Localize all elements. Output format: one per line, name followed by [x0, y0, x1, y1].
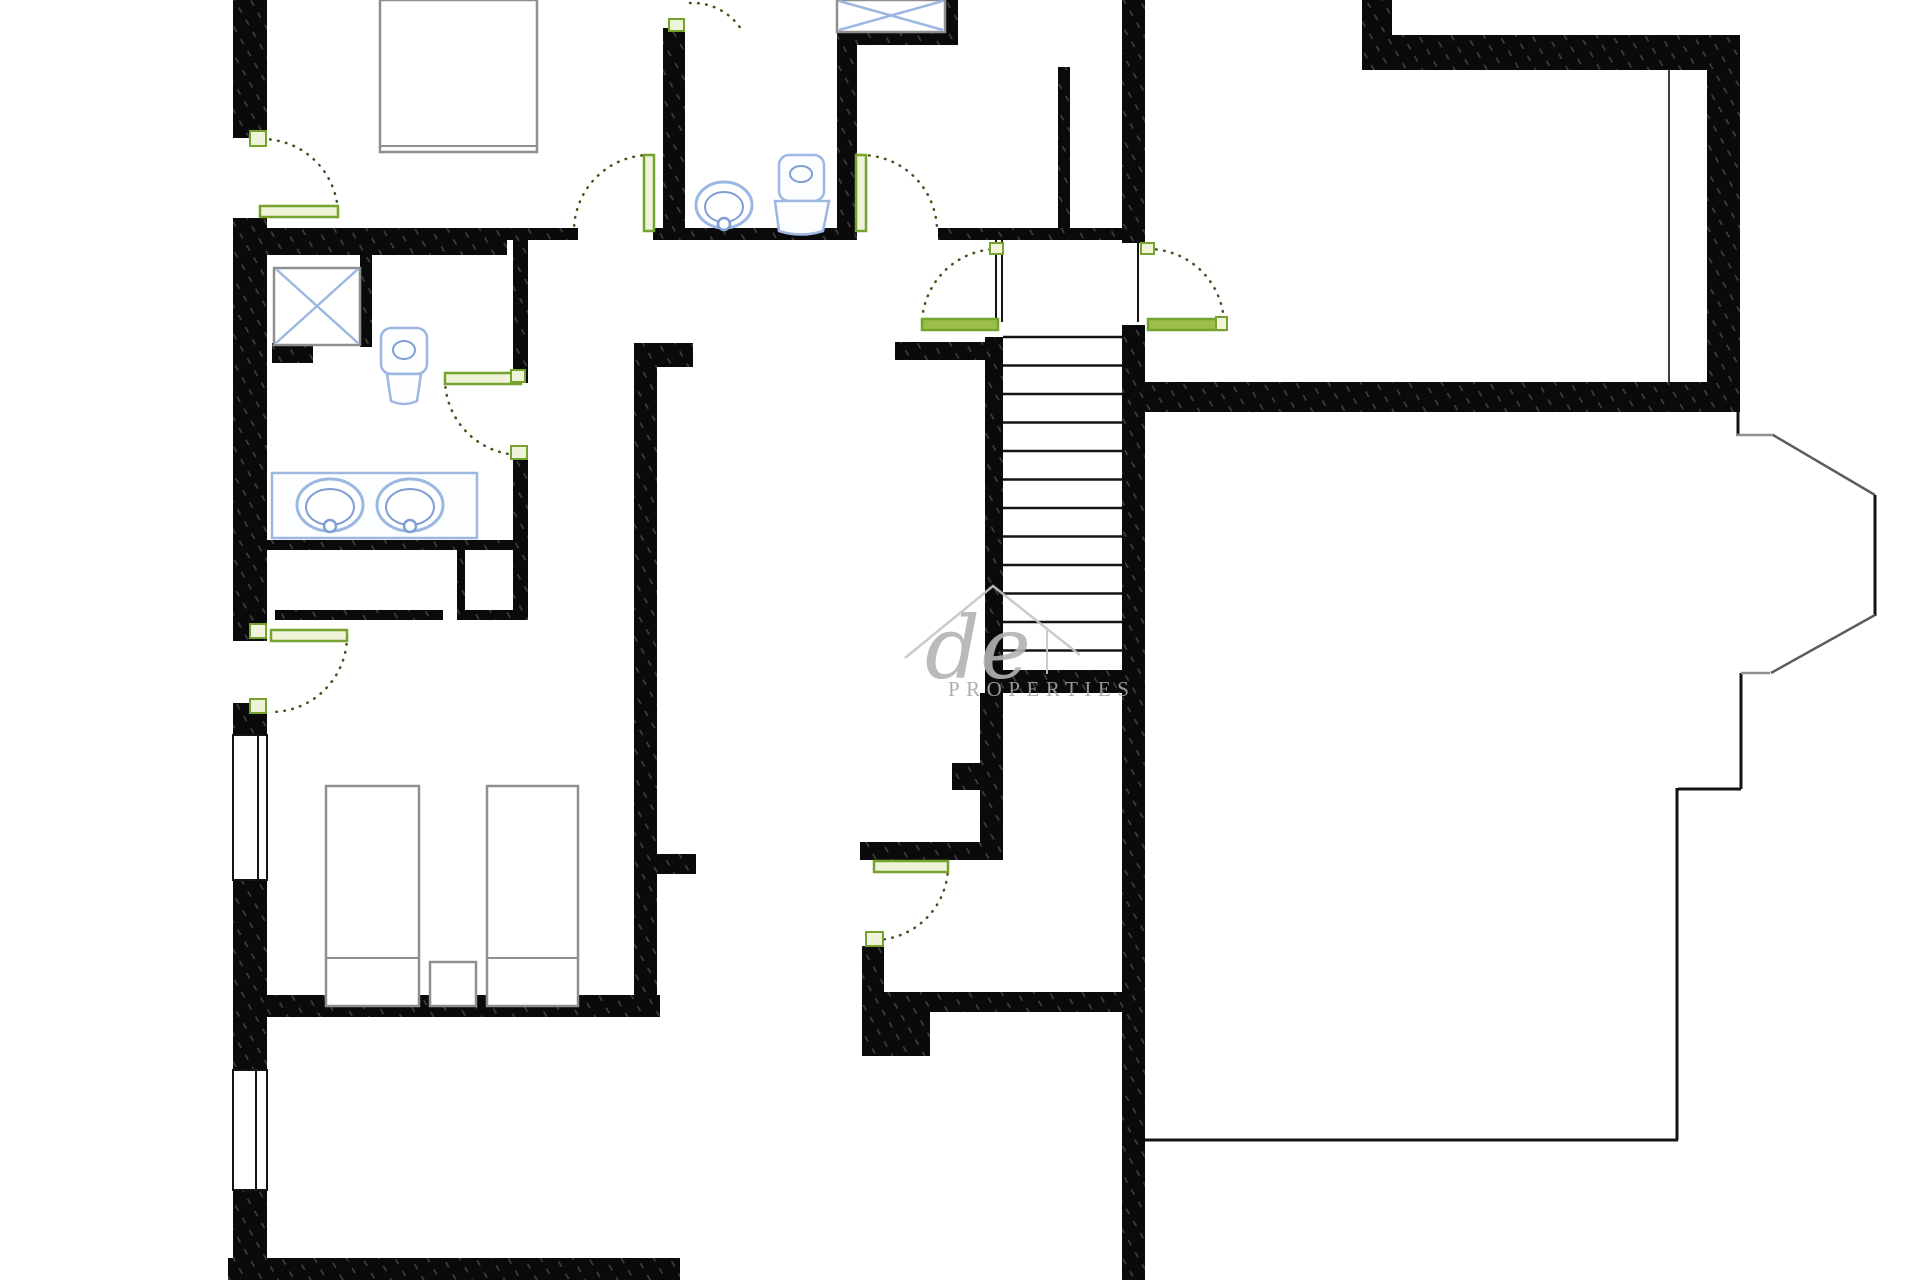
wall-understair-west: [980, 693, 1003, 843]
door-landing-right-leaf: [1148, 319, 1224, 330]
wall-bedroom2-east-stub: [657, 854, 696, 874]
wall-corridor-west-upper: [513, 230, 528, 383]
watermark-layer: dePROPERTIES: [905, 586, 1135, 701]
window-left-1-frame: [233, 735, 267, 880]
window-left-2: [233, 1070, 267, 1190]
door-bathroom: [445, 370, 527, 459]
line-bay-diag-top: [1773, 435, 1875, 495]
door-wc-leaf: [856, 155, 866, 231]
wall-wc-east: [837, 32, 857, 231]
bed-top: [380, 0, 537, 152]
wall-topright-south: [1145, 382, 1740, 412]
nightstand-outline: [430, 962, 476, 1006]
door-bedroom2-hinge-marker: [250, 624, 266, 638]
line-bay-diag-bottom: [1771, 615, 1875, 673]
wall-wc-west: [663, 28, 685, 231]
door-landing-left: [922, 243, 1003, 330]
door-bedroom1-hinge-marker: [250, 131, 266, 146]
door-lower-room-leaf: [874, 861, 948, 872]
wall-lowerroom-north: [884, 992, 1122, 1012]
door-landing-right-swing-arc: [1148, 249, 1224, 325]
door-landing-left-hinge-marker: [990, 243, 1003, 254]
wall-left-bedroom2-upper: [233, 880, 267, 1005]
door-bedroom1-swing-arc: [262, 139, 338, 215]
wall-bedroom1-south-thick: [267, 228, 507, 255]
door-lower-room: [866, 861, 948, 946]
wall-closet-north: [265, 540, 527, 550]
sink-vanity-right-drain: [404, 520, 416, 532]
door-bedroom1-leaf: [260, 206, 338, 217]
floor-plan-canvas: dePROPERTIES: [0, 0, 1920, 1280]
door-bedroom2-swing-arc: [271, 636, 347, 712]
watermark: dePROPERTIES: [905, 586, 1135, 701]
door-bedroom2: [250, 624, 347, 713]
wall-shower2-east: [360, 255, 372, 347]
door-bedroom2-leaf: [271, 630, 347, 641]
bed-twin-right: [487, 786, 578, 1006]
door-wc-top-swing-arc: [690, 3, 741, 29]
wall-topright-north: [1362, 35, 1740, 70]
shower-bathroom: [274, 268, 360, 345]
door-bathroom-leaf: [445, 373, 521, 384]
wall-right-corridor-upper: [1122, 0, 1145, 243]
door-wc-top: [669, 3, 741, 31]
bed-top-outline: [380, 0, 537, 152]
wall-topright-stub: [1362, 0, 1392, 35]
sink-wc-drain: [718, 218, 730, 230]
door-hall-west: [574, 155, 654, 231]
door-landing-right-hinge-marker: [1216, 317, 1227, 330]
door-hall-west-swing-arc: [574, 155, 650, 231]
bed-twin-left-outline: [326, 786, 419, 1006]
floor-plan-page: dePROPERTIES: [0, 0, 1920, 1280]
wall-shower-east: [945, 0, 958, 45]
door-wc: [856, 155, 937, 231]
sink-vanity-right: [377, 479, 443, 532]
door-lower-room-swing-arc: [874, 866, 948, 940]
wall-entry-stub: [1058, 67, 1070, 228]
toilet-wc: [775, 155, 829, 235]
door-landing-right: [1141, 243, 1227, 330]
door-bathroom-swing-arc: [445, 379, 521, 455]
door-bathroom-hinge-marker: [511, 446, 527, 459]
wall-lowerroom-pier: [862, 1012, 930, 1056]
door-bedroom2-hinge-marker: [250, 699, 266, 713]
sink-vanity-left-drain: [324, 520, 336, 532]
wall-left-bathroom: [233, 218, 267, 641]
wall-bedroom2-east-stub-top: [634, 343, 693, 367]
toilet-wc-bowl: [775, 201, 829, 235]
wall-bottom-left: [228, 1258, 680, 1280]
door-bedroom1: [250, 131, 338, 217]
bed-twin-right-outline: [487, 786, 578, 1006]
toilet-bathroom-bowl: [387, 374, 421, 404]
wall-closet-south-right: [465, 610, 513, 620]
wall-hall-stub: [895, 342, 985, 360]
wall-lowerhall-north: [860, 842, 1003, 860]
wall-right-corridor-lower: [1122, 325, 1145, 1280]
wall-topright-east: [1707, 35, 1740, 412]
door-landing-left-leaf: [922, 319, 998, 330]
window-left-1: [233, 735, 267, 880]
door-hall-west-leaf: [644, 155, 654, 231]
door-wc-swing-arc: [861, 155, 937, 231]
shower-top: [837, 0, 945, 32]
wall-landing-north: [938, 228, 1122, 240]
toilet-bathroom: [381, 328, 427, 404]
nightstand: [430, 962, 476, 1006]
watermark-caps-text: PROPERTIES: [948, 677, 1135, 701]
toilet-wc-tank: [779, 155, 824, 201]
wall-lowerroom-west: [862, 946, 884, 1012]
door-landing-right-hinge-marker: [1141, 243, 1154, 254]
sink-wc: [696, 182, 752, 230]
wall-corridor-west-lower: [513, 450, 528, 620]
door-lower-room-hinge-marker: [866, 932, 883, 946]
door-wc-top-hinge-marker: [669, 19, 684, 31]
window-left-2-frame: [233, 1070, 267, 1190]
wall-bedroom2-east: [634, 343, 657, 1008]
door-bathroom-hinge-marker: [511, 370, 525, 382]
wall-closet-divider: [457, 550, 465, 620]
wall-left-bedroom-top: [233, 0, 267, 138]
sink-vanity-left: [297, 479, 363, 532]
toilet-bathroom-tank: [381, 328, 427, 374]
door-landing-left-swing-arc: [922, 249, 998, 325]
wall-left-bedroom2-lower: [233, 1005, 267, 1070]
bed-twin-left: [326, 786, 419, 1006]
wall-closet-south-left: [275, 610, 443, 620]
wall-shower-shelf: [857, 32, 958, 45]
wall-understair-notch: [952, 763, 980, 790]
